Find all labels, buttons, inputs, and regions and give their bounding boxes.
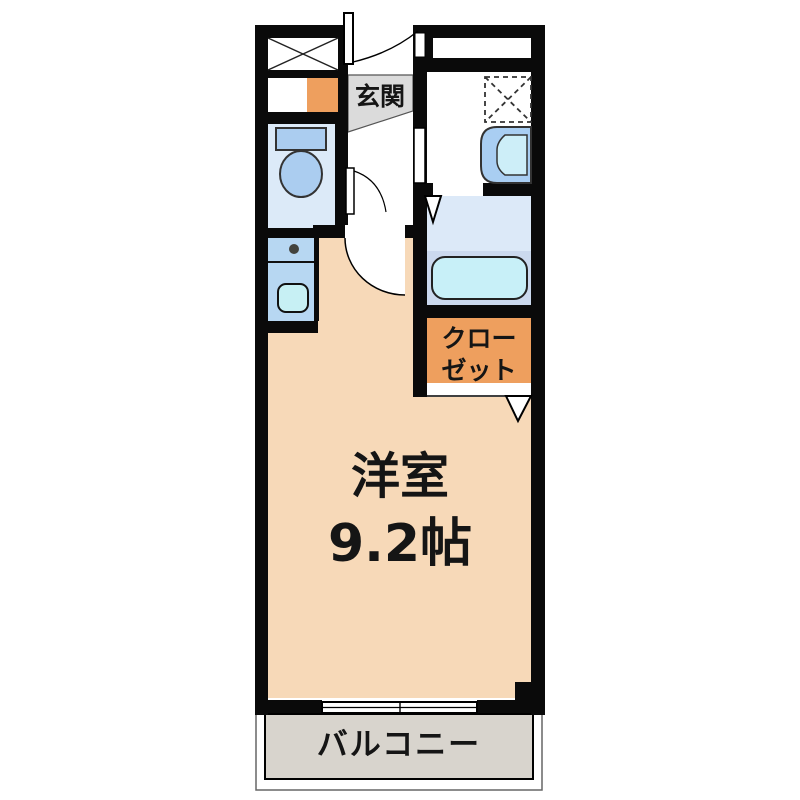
bathroom-floor bbox=[427, 196, 531, 251]
floor-plan-drawing bbox=[0, 0, 800, 800]
entrance-door-leaf bbox=[344, 13, 353, 64]
stove-burner-icon bbox=[289, 244, 299, 254]
main-room-door-opening bbox=[345, 225, 405, 238]
main-room-size: 9.2帖 bbox=[295, 515, 505, 573]
main-room-label: 洋室 9.2帖 bbox=[295, 450, 505, 573]
closet-label-line2: ゼット bbox=[427, 355, 531, 387]
washroom-door bbox=[414, 128, 425, 183]
upper-storage bbox=[433, 37, 531, 58]
bathtub-icon bbox=[432, 257, 527, 299]
pipe-space-icon bbox=[268, 38, 338, 70]
floor-plan: 玄関 クロー ゼット 洋室 9.2帖 バルコニー bbox=[0, 0, 800, 800]
toilet-icon bbox=[276, 128, 326, 197]
closet-label-line1: クロー bbox=[427, 323, 531, 355]
wall-step bbox=[515, 682, 545, 702]
shoe-storage bbox=[268, 78, 307, 112]
kitchen-sink-icon bbox=[278, 284, 308, 312]
shoe-storage-orange bbox=[307, 78, 338, 112]
entrance-door-jamb bbox=[415, 33, 425, 57]
sliding-window-icon bbox=[322, 702, 477, 713]
toilet-door-leaf bbox=[346, 168, 354, 214]
entrance-label: 玄関 bbox=[345, 83, 415, 112]
washbasin-icon bbox=[481, 127, 531, 183]
main-room-floor bbox=[268, 333, 318, 397]
balcony-label: バルコニー bbox=[265, 728, 533, 764]
main-room-name: 洋室 bbox=[295, 450, 505, 505]
closet-label: クロー ゼット bbox=[427, 323, 531, 387]
bathroom-door-opening bbox=[433, 183, 483, 196]
